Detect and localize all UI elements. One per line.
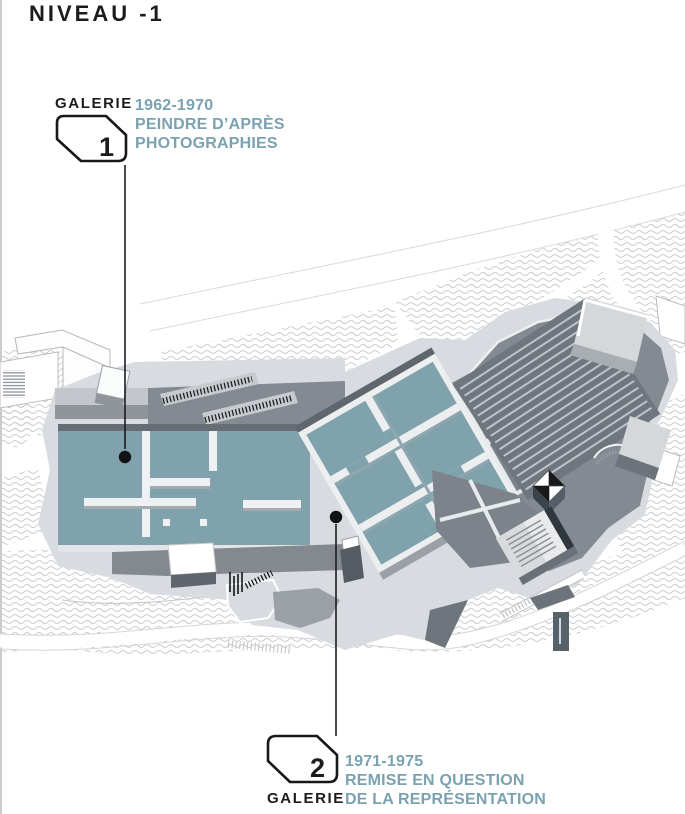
galerie-1-number: 1 bbox=[99, 132, 114, 162]
galerie-2-line2: DE LA REPRÉSENTATION bbox=[345, 789, 546, 808]
floor-plan-page: NIVEAU -1 GALERIE 1 1962-1970 PEINDRE D’… bbox=[0, 0, 685, 814]
galerie-1-line1: PEINDRE D’APRÈS bbox=[135, 114, 285, 133]
floor-map: NIVEAU -1 GALERIE 1 1962-1970 PEINDRE D’… bbox=[0, 0, 685, 814]
galerie-1-word: GALERIE bbox=[55, 95, 133, 112]
galerie-1-years: 1962-1970 bbox=[135, 97, 213, 114]
white-room bbox=[168, 543, 216, 588]
galerie-1-label: GALERIE 1 1962-1970 PEINDRE D’APRÈS PHOT… bbox=[55, 95, 285, 162]
kiosk bbox=[553, 612, 569, 651]
galerie-2-word: GALERIE bbox=[267, 790, 345, 807]
stair-hatch bbox=[3, 370, 25, 398]
galerie-2-badge bbox=[268, 736, 337, 782]
galerie-2-label: 2 GALERIE 1971-1975 REMISE EN QUESTION D… bbox=[267, 736, 546, 808]
leader-1-dot bbox=[119, 451, 131, 463]
page-title: NIVEAU -1 bbox=[29, 1, 165, 26]
galerie-1-badge bbox=[57, 116, 126, 161]
galerie-1-line2: PHOTOGRAPHIES bbox=[135, 135, 278, 152]
leader-2-dot bbox=[330, 511, 342, 523]
galerie-2-years: 1971-1975 bbox=[345, 753, 423, 770]
galerie-2-line1: REMISE EN QUESTION bbox=[345, 772, 525, 789]
galerie-2-number: 2 bbox=[310, 753, 325, 783]
